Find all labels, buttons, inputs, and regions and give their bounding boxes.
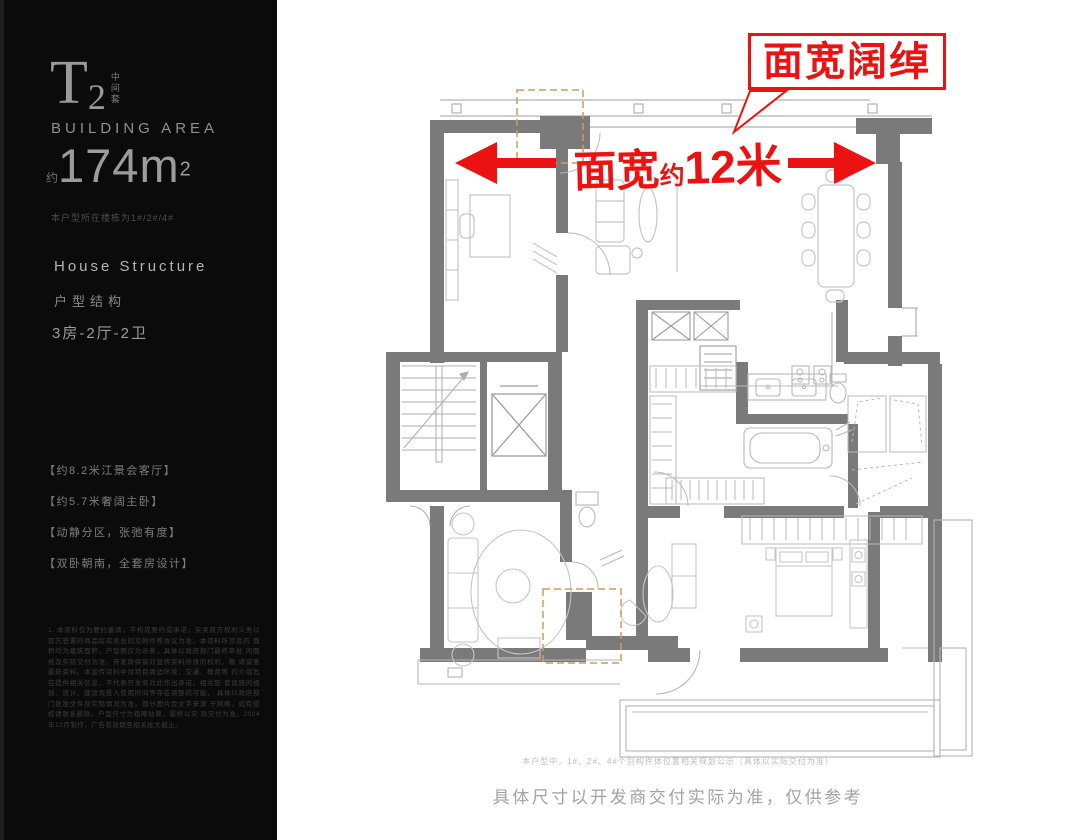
legal-line: 1. 本资料仅为要约邀请，不构成要约或承诺，买卖双方权利义务以 xyxy=(48,627,260,634)
legal-disclaimer: 1. 本资料仅为要约邀请，不构成要约或承诺，买卖双方权利义务以 双方签署的商品房… xyxy=(48,626,260,731)
bathtub-icon xyxy=(744,422,852,468)
building-area-label: BUILDING AREA xyxy=(51,120,218,137)
area-unit: m xyxy=(139,139,179,192)
dining-table-icon xyxy=(802,170,870,302)
dimension-prefix: 面宽 xyxy=(573,146,660,196)
headline-callout: 面宽阔绰 xyxy=(748,33,946,90)
toilet-icon xyxy=(576,374,846,566)
selling-point: 【约8.2米江景会客厅】 xyxy=(44,462,194,478)
lounge-furniture xyxy=(448,513,571,666)
info-panel: T2中间套 BUILDING AREA 约174m2 本户型所在楼栋为1#/2#… xyxy=(0,0,277,840)
shaft-icon xyxy=(652,312,736,390)
unit-code-letter: T xyxy=(50,49,88,117)
area-value: 约174m2 xyxy=(46,138,191,193)
unit-code-number: 2 xyxy=(88,77,106,117)
legal-line: 双方签署的商品房买卖合同及附件等协议为准。本资料所涉及的 xyxy=(48,638,250,645)
headline-text: 面宽阔绰 xyxy=(763,42,931,82)
dimension-value: 12米 xyxy=(684,139,782,194)
selling-point: 【约5.7米奢阔主卧】 xyxy=(44,493,194,509)
unit-code: T2中间套 xyxy=(50,52,119,118)
room-count: 3房-2厅-2卫 xyxy=(52,322,148,343)
structure-title-cn: 户型结构 xyxy=(54,291,126,310)
area-number: 174 xyxy=(58,139,139,192)
bay-window xyxy=(848,396,926,504)
flyer-page: { "panel": { "unit_code_letter": "T", "u… xyxy=(0,0,1079,840)
elevator-icon xyxy=(492,386,546,456)
bed-icon xyxy=(620,540,867,632)
desk-icon xyxy=(446,180,557,300)
selling-points: 【约8.2米江景会客厅】 【约5.7米奢阔主卧】 【动静分区，张弛有度】 【双卧… xyxy=(44,462,194,586)
dimension-label: 面宽约12米 xyxy=(569,129,786,201)
area-approx: 约 xyxy=(46,171,58,185)
selling-point: 【动静分区，张弛有度】 xyxy=(44,524,194,540)
building-note: 本户型所在楼栋为1#/2#/4# xyxy=(51,211,174,224)
area-sup: 2 xyxy=(180,159,191,181)
stove-icon xyxy=(700,312,838,386)
disclaimer-caption: 具体尺寸以开发商交付实际为准，仅供参考 xyxy=(300,783,1056,808)
annotation-leader xyxy=(734,91,786,132)
unit-code-side: 中间套 xyxy=(110,72,119,105)
dimension-approx: 约 xyxy=(659,162,685,191)
plan-footnote: 本户型中，1#、2#、4#个别构件体位置相关规划公示（具体以实际交付为准） xyxy=(300,756,1056,767)
selling-point: 【双卧朝南，全套房设计】 xyxy=(44,555,194,571)
structure-title-en: House Structure xyxy=(54,258,207,275)
